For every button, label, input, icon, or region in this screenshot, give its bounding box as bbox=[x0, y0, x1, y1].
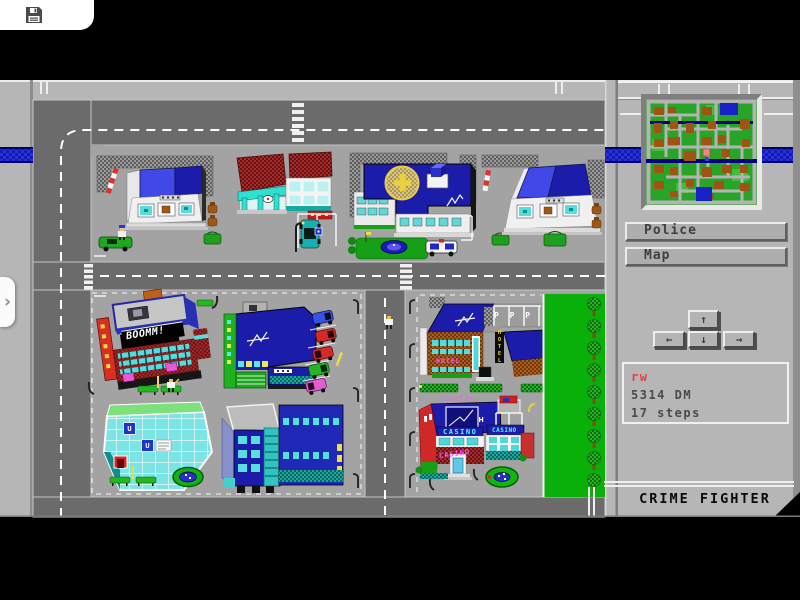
save-button[interactable] bbox=[0, 0, 94, 30]
money-readout: 5314 DM bbox=[631, 386, 780, 404]
arrow-left-icon: ← bbox=[666, 333, 673, 346]
arrow-down-icon: ↓ bbox=[700, 333, 707, 346]
casino-marquee-sign: CASINO bbox=[492, 427, 517, 434]
player-position-dot bbox=[703, 149, 710, 156]
casino-roof-sign: CASINO bbox=[444, 395, 475, 403]
minimap-canvas bbox=[646, 99, 757, 205]
minimap bbox=[641, 94, 762, 210]
city-map-viewport[interactable] bbox=[0, 0, 800, 600]
fountain-casino bbox=[486, 467, 518, 487]
metro-sign: U bbox=[123, 422, 136, 435]
hotel-sign: HOTEL bbox=[436, 357, 461, 365]
expand-sidebar-tab[interactable]: › bbox=[0, 277, 15, 327]
move-right-button[interactable]: → bbox=[723, 331, 755, 348]
casino-marquee-sign: CASINO bbox=[443, 428, 477, 436]
map-button[interactable]: Map bbox=[625, 247, 787, 266]
steps-readout: 17 steps bbox=[631, 404, 780, 422]
move-down-button[interactable]: ↓ bbox=[688, 331, 719, 348]
hedges bbox=[419, 384, 543, 392]
fountain-west bbox=[173, 468, 203, 487]
trees bbox=[588, 298, 601, 493]
floppy-disk-icon bbox=[24, 5, 44, 25]
chevron-right-icon: › bbox=[4, 292, 11, 312]
wall-column bbox=[605, 80, 618, 517]
building-offices bbox=[222, 404, 343, 493]
park bbox=[543, 294, 606, 497]
police-button[interactable]: Police bbox=[625, 222, 787, 241]
roof-parking-sign: P P P bbox=[494, 311, 533, 320]
building-casino bbox=[416, 396, 536, 490]
game-title: CRIME FIGHTER bbox=[610, 491, 800, 507]
metro-sign: U bbox=[141, 439, 154, 452]
move-up-button[interactable]: ↑ bbox=[688, 310, 719, 329]
move-left-button[interactable]: ← bbox=[653, 331, 685, 348]
arrow-right-icon: → bbox=[736, 333, 743, 346]
player-name: rw bbox=[631, 368, 780, 386]
status-panel: rw 5314 DM 17 steps bbox=[622, 362, 789, 424]
hotel-vertical-sign: HOTEL bbox=[495, 332, 504, 363]
building-shop-west bbox=[124, 166, 208, 230]
game-screen: BOOMM! U U P P P HOTEL HOTEL CASINO CASI… bbox=[0, 0, 800, 600]
building-antenna bbox=[224, 302, 316, 389]
arrow-up-icon: ↑ bbox=[700, 313, 707, 326]
fire-escape bbox=[264, 428, 279, 486]
